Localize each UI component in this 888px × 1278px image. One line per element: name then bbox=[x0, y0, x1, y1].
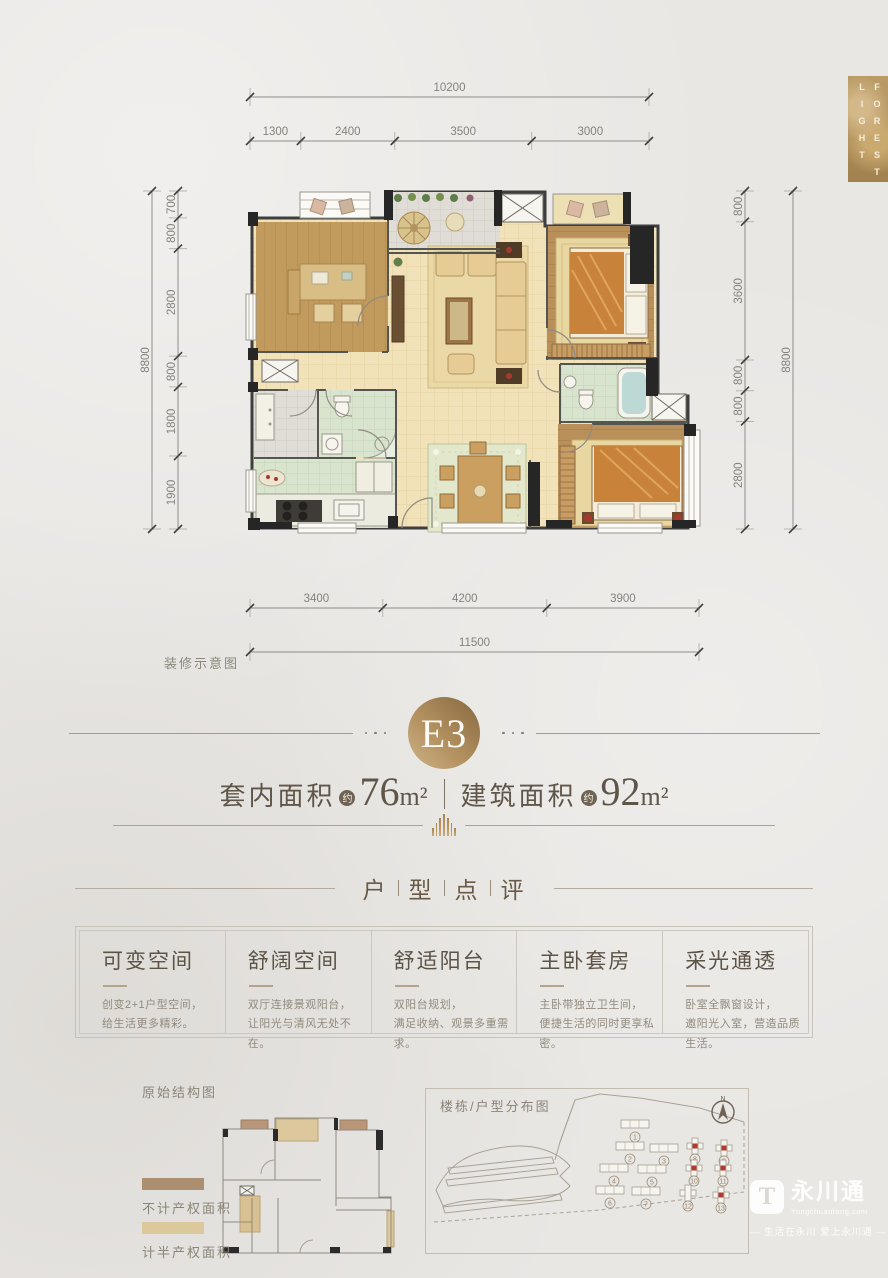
site-building: 3 bbox=[650, 1144, 678, 1166]
site-building: 5 bbox=[638, 1165, 666, 1187]
site-building: 1 bbox=[621, 1120, 649, 1142]
watermark-logo: T 永川通 Yongchuantong.com — 生活在永川 爱上永川通 — bbox=[750, 1180, 884, 1238]
svg-text:2: 2 bbox=[628, 1157, 632, 1164]
site-building: 7 bbox=[632, 1187, 660, 1209]
svg-text:7: 7 bbox=[644, 1202, 648, 1209]
logo-tagline: — 生活在永川 爱上永川通 — bbox=[750, 1224, 884, 1238]
svg-text:4: 4 bbox=[612, 1179, 616, 1186]
compass-icon: N bbox=[712, 1096, 734, 1123]
svg-text:11: 11 bbox=[719, 1179, 726, 1186]
svg-text:10: 10 bbox=[690, 1179, 698, 1186]
site-building: 10 bbox=[686, 1160, 702, 1186]
site-plan-drawing: 12389451011671213 N bbox=[0, 0, 888, 1278]
site-building: 2 bbox=[616, 1142, 644, 1164]
svg-text:13: 13 bbox=[717, 1206, 725, 1213]
svg-text:1: 1 bbox=[633, 1135, 637, 1142]
svg-text:3: 3 bbox=[662, 1159, 666, 1166]
svg-text:5: 5 bbox=[650, 1180, 654, 1187]
site-building: 13 bbox=[713, 1187, 729, 1213]
compass-n: N bbox=[720, 1096, 725, 1103]
site-buildings: 12389451011671213 bbox=[596, 1120, 732, 1213]
logo-site: Yongchuantong.com bbox=[791, 1207, 868, 1216]
svg-text:6: 6 bbox=[608, 1201, 612, 1208]
site-building: 11 bbox=[715, 1160, 731, 1186]
poster-page: 1020013002400350030003400420039001150088… bbox=[0, 0, 888, 1278]
logo-icon: T bbox=[750, 1180, 784, 1214]
logo-name: 永川通 bbox=[791, 1180, 868, 1203]
svg-text:12: 12 bbox=[684, 1204, 692, 1211]
site-building: 6 bbox=[596, 1186, 624, 1208]
site-roads bbox=[434, 1094, 744, 1222]
site-building: 4 bbox=[600, 1164, 628, 1186]
